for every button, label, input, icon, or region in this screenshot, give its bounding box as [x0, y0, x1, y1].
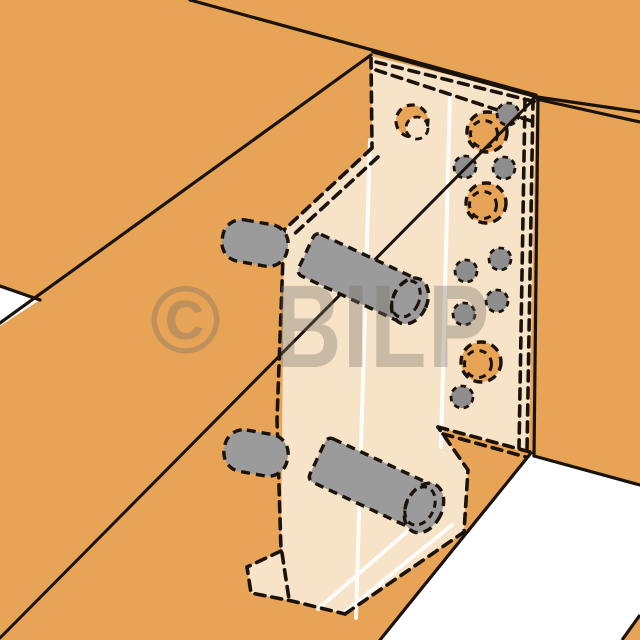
connector-illustration	[0, 0, 640, 640]
fastener-pin-8	[451, 386, 473, 408]
fastener-pin-5	[455, 260, 477, 282]
fastener-pin-6	[486, 290, 508, 312]
fastener-pin-7	[453, 303, 475, 325]
fastener-pin-3	[493, 157, 515, 179]
fastener-pin-4	[489, 248, 511, 270]
fastener-pin-1	[497, 103, 519, 125]
illustration-stage: © BILP	[0, 0, 640, 640]
